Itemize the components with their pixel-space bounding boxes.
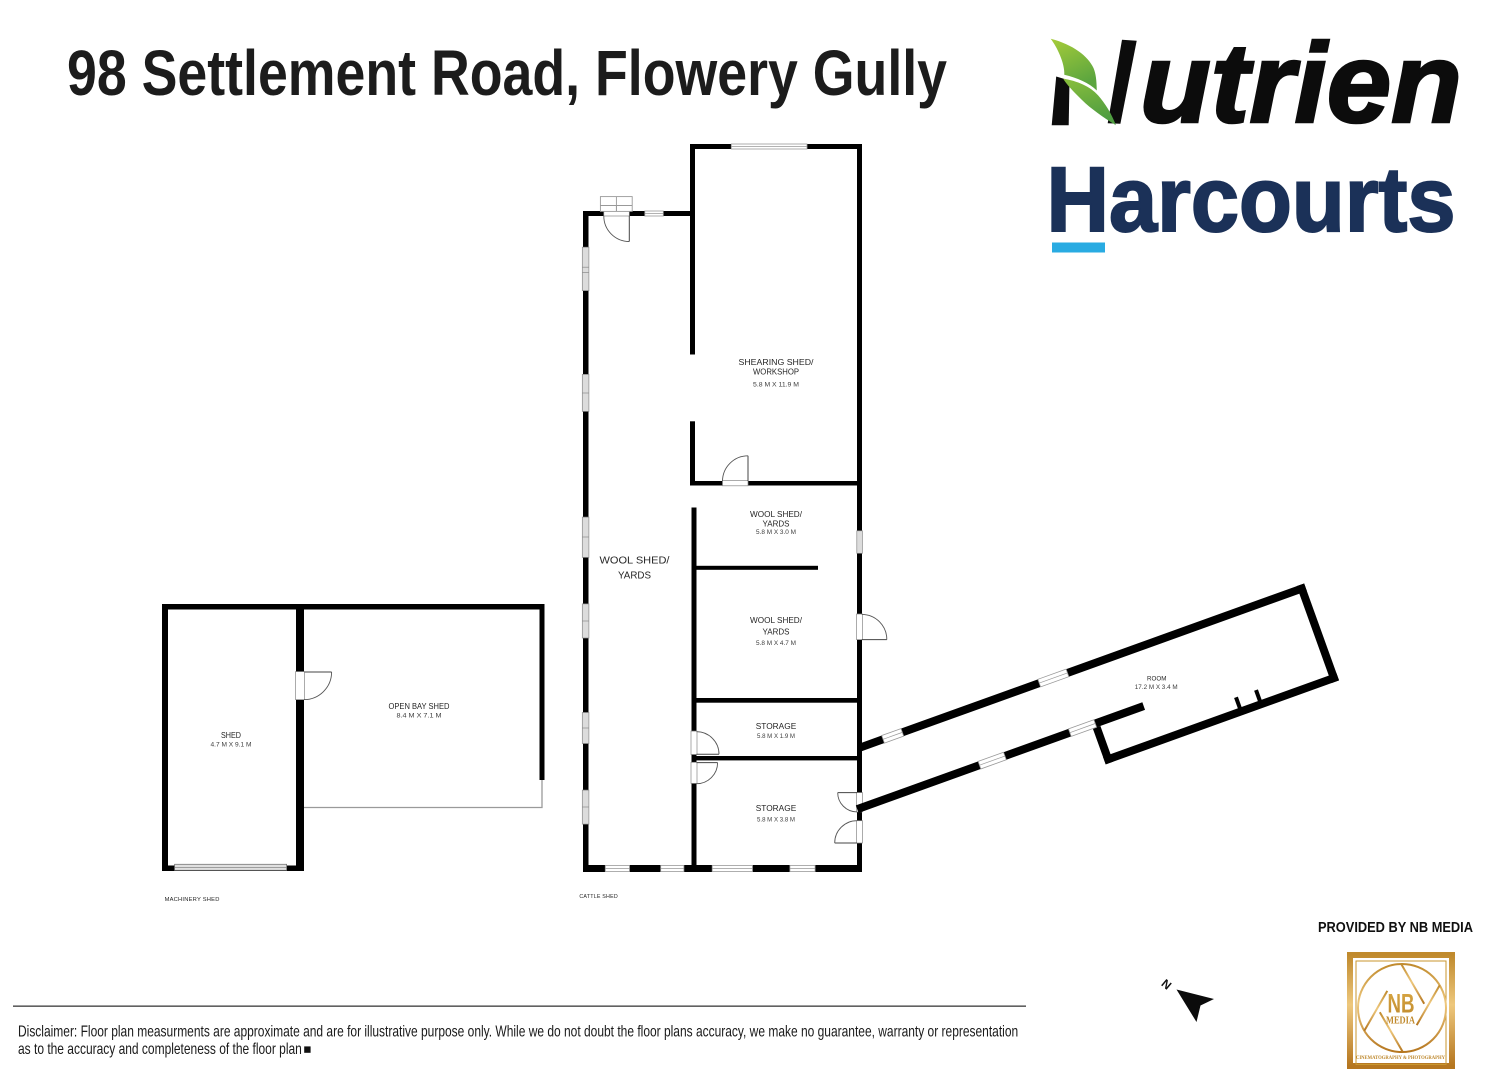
svg-text:utrien: utrien [1140, 20, 1462, 146]
svg-text:as to the accuracy and complet: as to the accuracy and completeness of t… [18, 1039, 302, 1057]
svg-text:WOOL SHED/: WOOL SHED/ [600, 556, 670, 567]
svg-text:YARDS: YARDS [763, 628, 790, 637]
svg-text:CATTLE SHED: CATTLE SHED [579, 894, 618, 900]
svg-text:PROVIDED BY NB MEDIA: PROVIDED BY NB MEDIA [1318, 920, 1473, 936]
svg-text:YARDS: YARDS [763, 519, 790, 528]
svg-text:SHEARING SHED/: SHEARING SHED/ [739, 358, 815, 367]
svg-text:STORAGE: STORAGE [756, 804, 797, 813]
svg-text:WOOL SHED/: WOOL SHED/ [750, 510, 803, 519]
svg-text:5.8 M X 3.0 M: 5.8 M X 3.0 M [756, 530, 796, 536]
svg-text:5.8 M X 1.9 M: 5.8 M X 1.9 M [757, 734, 795, 740]
svg-text:8.4 M X 7.1 M: 8.4 M X 7.1 M [397, 714, 442, 720]
svg-text:NB: NB [1388, 989, 1415, 1019]
svg-text:4.7 M X 9.1 M: 4.7 M X 9.1 M [211, 743, 252, 749]
svg-text:YARDS: YARDS [618, 571, 651, 582]
svg-text:5.8 M X 4.7 M: 5.8 M X 4.7 M [756, 641, 796, 647]
svg-text:Harcourts: Harcourts [1047, 149, 1456, 251]
svg-text:CINEMATOGRAPHY & PHOTOGRAPHY: CINEMATOGRAPHY & PHOTOGRAPHY [1356, 1055, 1445, 1061]
svg-text:17.2 M X 3.4 M: 17.2 M X 3.4 M [1135, 685, 1178, 691]
svg-text:WOOL SHED/: WOOL SHED/ [750, 616, 803, 625]
svg-text:MEDIA: MEDIA [1386, 1016, 1416, 1027]
svg-text:5.8 M X 3.8 M: 5.8 M X 3.8 M [757, 818, 795, 824]
svg-text:OPEN BAY SHED: OPEN BAY SHED [389, 702, 450, 711]
svg-text:STORAGE: STORAGE [756, 722, 797, 731]
svg-text:SHED: SHED [221, 731, 241, 740]
svg-text:MACHINERY SHED: MACHINERY SHED [165, 897, 220, 903]
svg-text:98 Settlement Road, Flowery Gu: 98 Settlement Road, Flowery Gully [67, 37, 947, 109]
svg-text:Disclaimer: Floor plan measurm: Disclaimer: Floor plan measurments are a… [18, 1022, 1018, 1040]
svg-text:WORKSHOP: WORKSHOP [753, 368, 799, 377]
svg-text:ROOM: ROOM [1147, 676, 1166, 683]
svg-text:5.8 M X 11.9 M: 5.8 M X 11.9 M [753, 383, 799, 389]
